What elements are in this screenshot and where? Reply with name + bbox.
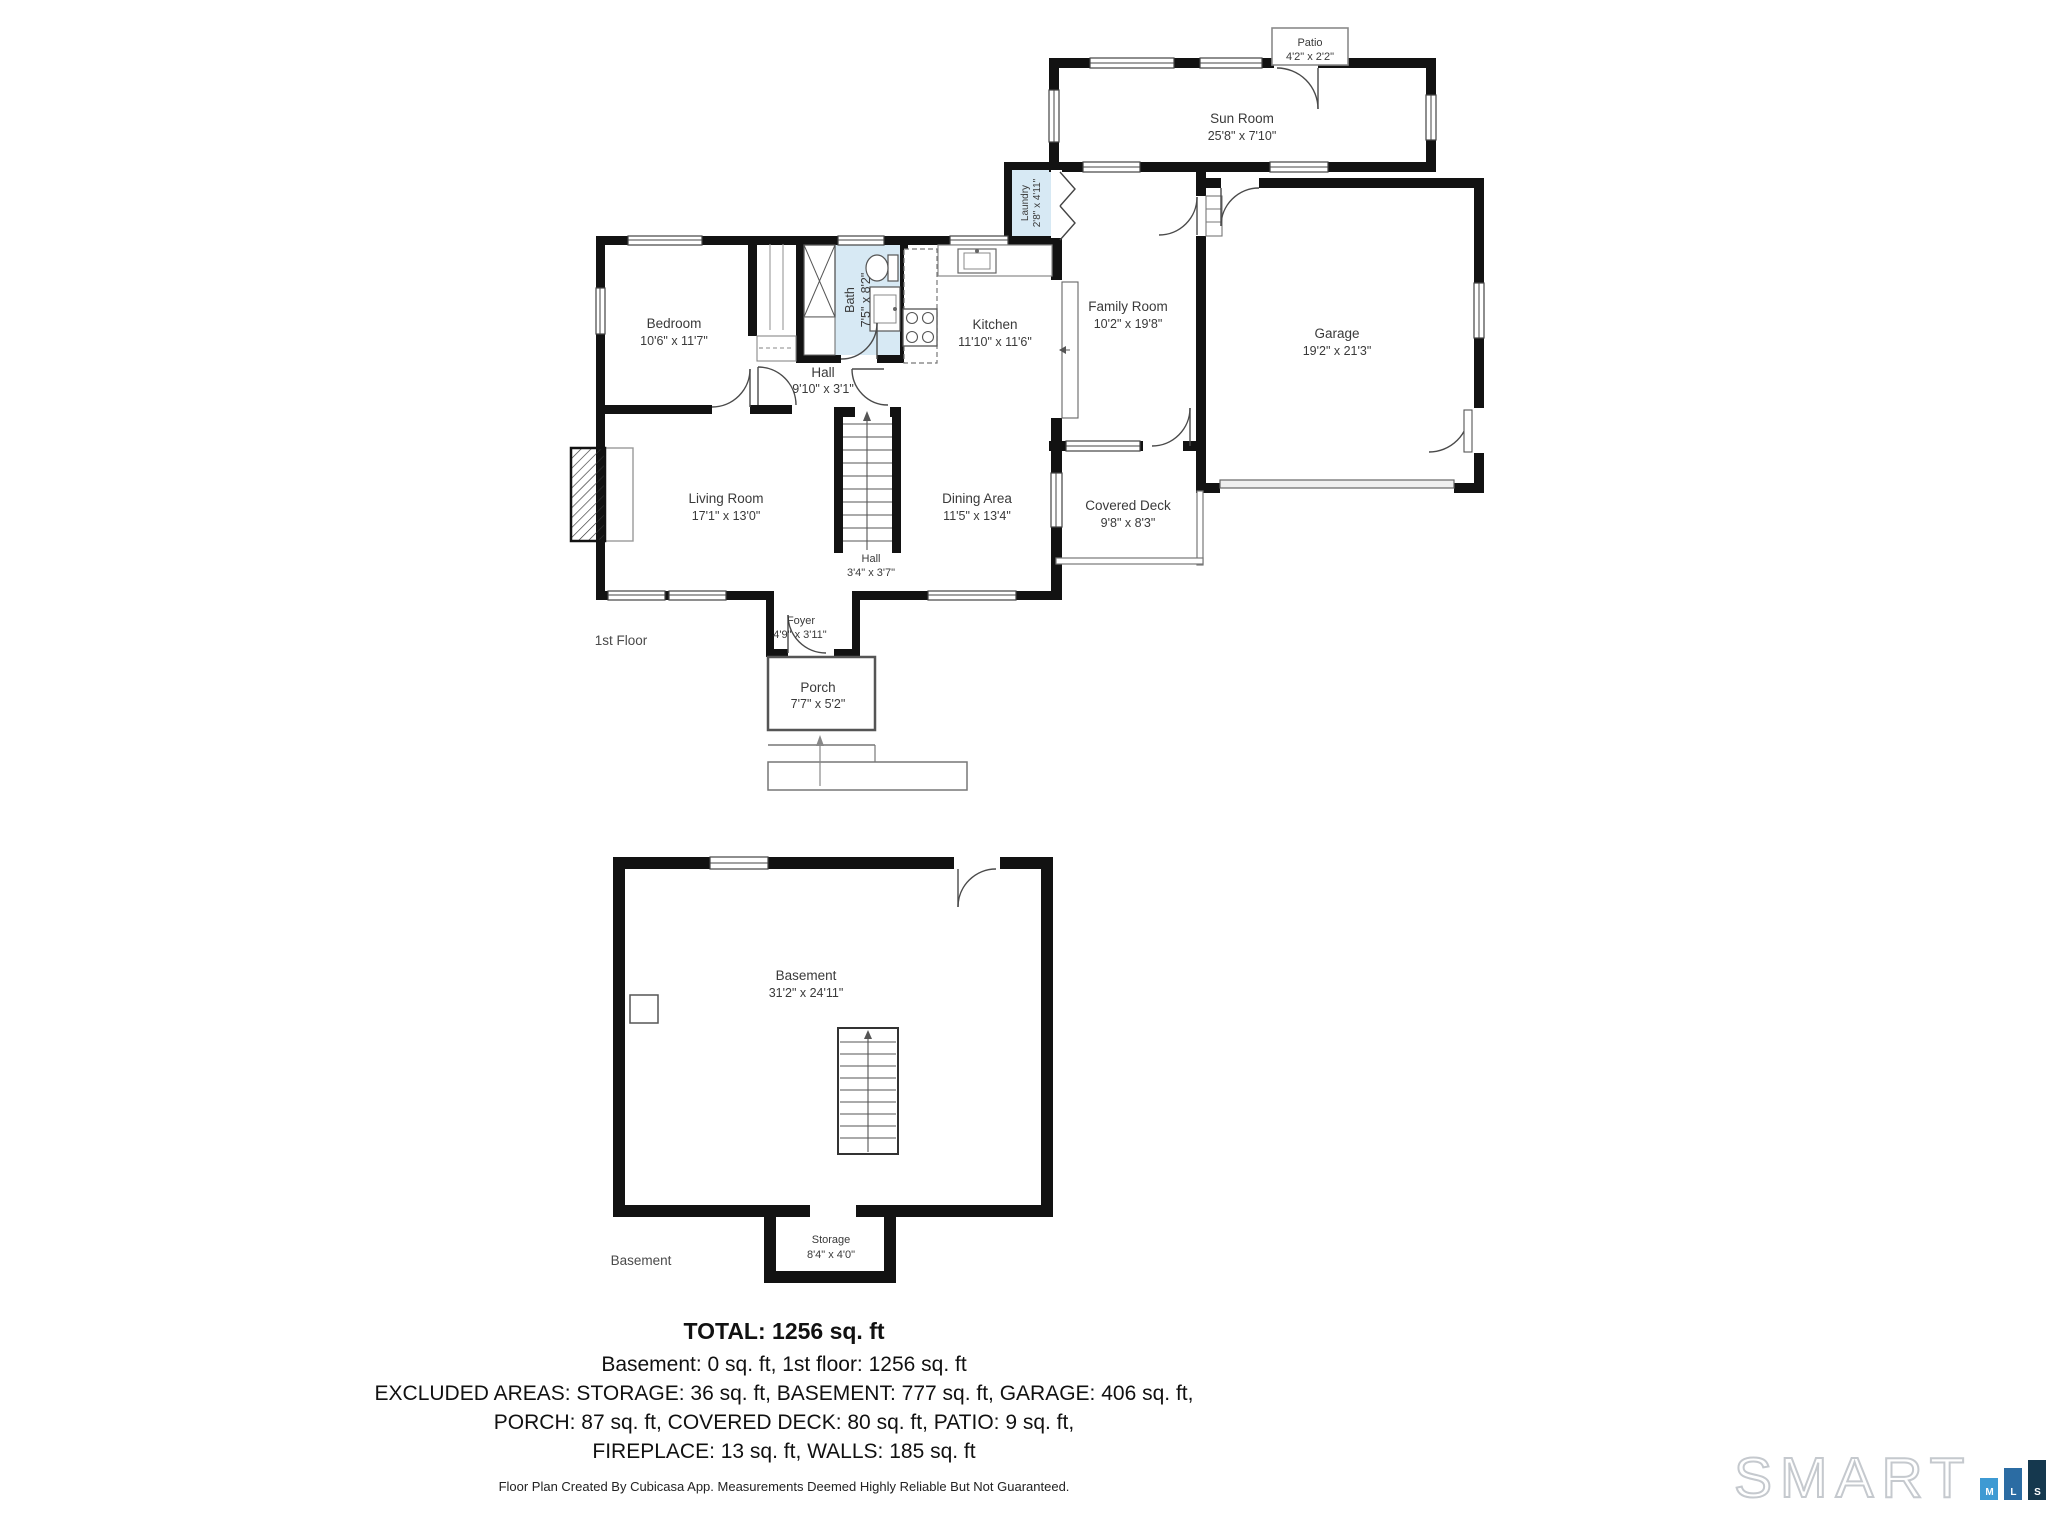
- label-porch-dims: 7'7" x 5'2": [791, 697, 846, 711]
- basement-post: [630, 995, 658, 1023]
- stairs-basement: [838, 1028, 898, 1154]
- label-basement-floor: Basement: [611, 1253, 672, 1268]
- disclaimer-text: Floor Plan Created By Cubicasa App. Meas…: [230, 1479, 1338, 1494]
- area-summary: TOTAL: 1256 sq. ft Basement: 0 sq. ft, 1…: [230, 1318, 1338, 1494]
- garage-door: [1220, 480, 1454, 488]
- label-laundry-dims: 2'8" x 4'11": [1032, 178, 1043, 227]
- label-floor1: 1st Floor: [595, 633, 648, 648]
- label-storage-dims: 8'4" x 4'0": [807, 1249, 855, 1261]
- label-hall-upper-dims: 9'10" x 3'1": [792, 382, 854, 396]
- label-covereddeck-name: Covered Deck: [1085, 498, 1171, 513]
- label-livingroom-name: Living Room: [688, 491, 763, 506]
- garage-step: [1206, 196, 1222, 236]
- smartmls-logo: SMART M L S: [1734, 1456, 2046, 1502]
- smartmls-logo-bars-icon: M L S: [1980, 1460, 2046, 1502]
- porch-steps: [768, 657, 967, 790]
- label-kitchen-dims: 11'10" x 11'6": [958, 335, 1032, 349]
- label-patio-name: Patio: [1297, 37, 1322, 49]
- smartmls-logo-wordmark: SMART: [1734, 1456, 1972, 1502]
- label-basement-dims: 31'2" x 24'11": [769, 986, 844, 1000]
- laundry-bifold-doors: [1060, 172, 1075, 240]
- summary-line-excluded-1: EXCLUDED AREAS: STORAGE: 36 sq. ft, BASE…: [230, 1379, 1338, 1408]
- label-hall-upper-name: Hall: [811, 365, 834, 380]
- label-garage-name: Garage: [1314, 326, 1359, 341]
- basement-walls: [613, 857, 1053, 1283]
- logo-bar-s: S: [2028, 1460, 2046, 1500]
- summary-line-excluded-2: PORCH: 87 sq. ft, COVERED DECK: 80 sq. f…: [230, 1408, 1338, 1437]
- summary-line-floors: Basement: 0 sq. ft, 1st floor: 1256 sq. …: [230, 1350, 1338, 1379]
- label-hall-lower-name: Hall: [862, 553, 881, 565]
- label-laundry-name: Laundry: [1020, 185, 1031, 221]
- fireplace: [571, 448, 633, 541]
- label-porch-name: Porch: [800, 680, 835, 695]
- label-bedroom-dims: 10'6" x 11'7": [640, 334, 708, 348]
- label-covereddeck-dims: 9'8" x 8'3": [1101, 516, 1156, 530]
- label-foyer-dims: 4'9" x 3'11": [773, 629, 826, 641]
- closets: [757, 244, 796, 361]
- label-sunroom-dims: 25'8" x 7'10": [1208, 129, 1277, 143]
- label-storage-name: Storage: [812, 1234, 851, 1246]
- label-bedroom-name: Bedroom: [647, 316, 702, 331]
- label-patio-dims: 4'2" x 2'2": [1286, 51, 1334, 63]
- logo-bar-l: L: [2004, 1468, 2022, 1500]
- label-bath-dims: 7'5" x 8'2": [859, 273, 873, 328]
- summary-line-excluded-3: FIREPLACE: 13 sq. ft, WALLS: 185 sq. ft: [230, 1437, 1338, 1466]
- label-hall-lower-dims: 3'4" x 3'7": [847, 567, 895, 579]
- label-sunroom-name: Sun Room: [1210, 111, 1274, 126]
- label-garage-dims: 19'2" x 21'3": [1303, 344, 1372, 358]
- sliding-door: [1059, 282, 1078, 418]
- label-kitchen-name: Kitchen: [972, 317, 1017, 332]
- label-familyroom-dims: 10'2" x 19'8": [1094, 317, 1163, 331]
- floorplan-drawing: Patio 4'2" x 2'2" Sun Room 25'8" x 7'10"…: [0, 0, 2048, 1310]
- basement-door: [958, 869, 996, 907]
- floorplan-page: Patio 4'2" x 2'2" Sun Room 25'8" x 7'10"…: [0, 0, 2048, 1536]
- stairs-first-floor: [843, 411, 892, 550]
- total-area: TOTAL: 1256 sq. ft: [230, 1318, 1338, 1345]
- label-livingroom-dims: 17'1" x 13'0": [692, 509, 761, 523]
- label-familyroom-name: Family Room: [1088, 299, 1168, 314]
- label-diningarea-name: Dining Area: [942, 491, 1012, 506]
- label-bath-name: Bath: [843, 287, 857, 313]
- basement-window: [710, 857, 768, 869]
- logo-bar-m: M: [1980, 1478, 1998, 1500]
- label-diningarea-dims: 11'5" x 13'4": [943, 509, 1011, 523]
- label-foyer-name: Foyer: [787, 615, 815, 627]
- label-basement-name: Basement: [776, 968, 837, 983]
